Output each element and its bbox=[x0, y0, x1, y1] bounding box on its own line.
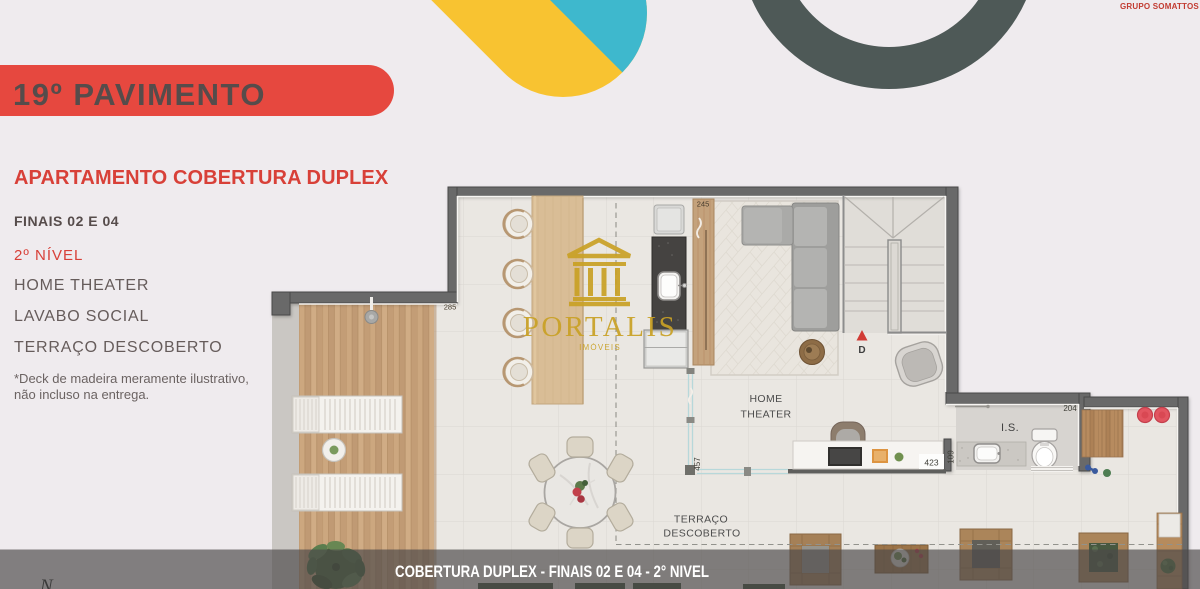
svg-text:não incluso na entrega.: não incluso na entrega. bbox=[14, 387, 149, 402]
svg-text:PORTALIS: PORTALIS bbox=[523, 311, 678, 343]
svg-text:N: N bbox=[39, 576, 54, 589]
svg-text:245: 245 bbox=[697, 200, 710, 209]
svg-text:19º PAVIMENTO: 19º PAVIMENTO bbox=[13, 77, 266, 112]
svg-text:APARTAMENTO COBERTURA DUPLEX: APARTAMENTO COBERTURA DUPLEX bbox=[14, 167, 389, 189]
svg-text:LAVABO SOCIAL: LAVABO SOCIAL bbox=[14, 308, 149, 325]
svg-text:TERRAÇO DESCOBERTO: TERRAÇO DESCOBERTO bbox=[14, 339, 223, 356]
svg-text:285: 285 bbox=[444, 303, 457, 312]
svg-text:GRUPO SOMATTOS: GRUPO SOMATTOS bbox=[1120, 2, 1199, 11]
svg-text:THEATER: THEATER bbox=[740, 409, 791, 421]
svg-text:TERRAÇO: TERRAÇO bbox=[674, 514, 728, 526]
svg-text:HOME: HOME bbox=[749, 393, 782, 405]
svg-text:COBERTURA DUPLEX - FINAIS 02 E: COBERTURA DUPLEX - FINAIS 02 E 04 - 2° N… bbox=[395, 562, 709, 581]
svg-text:I.S.: I.S. bbox=[1001, 422, 1019, 434]
svg-text:423: 423 bbox=[924, 458, 938, 468]
svg-text:D: D bbox=[858, 345, 865, 356]
svg-text:DESCOBERTO: DESCOBERTO bbox=[663, 528, 740, 540]
svg-text:457: 457 bbox=[693, 457, 702, 471]
svg-text:IMÓVEIS: IMÓVEIS bbox=[579, 343, 621, 352]
svg-text:*Deck de madeira meramente ilu: *Deck de madeira meramente ilustrativo, bbox=[14, 371, 249, 386]
svg-text:FINAIS 02 E 04: FINAIS 02 E 04 bbox=[14, 213, 119, 229]
svg-text:2º NÍVEL: 2º NÍVEL bbox=[14, 247, 83, 264]
svg-text:109: 109 bbox=[947, 450, 956, 464]
svg-text:204: 204 bbox=[1063, 404, 1077, 413]
svg-text:HOME THEATER: HOME THEATER bbox=[14, 277, 149, 294]
